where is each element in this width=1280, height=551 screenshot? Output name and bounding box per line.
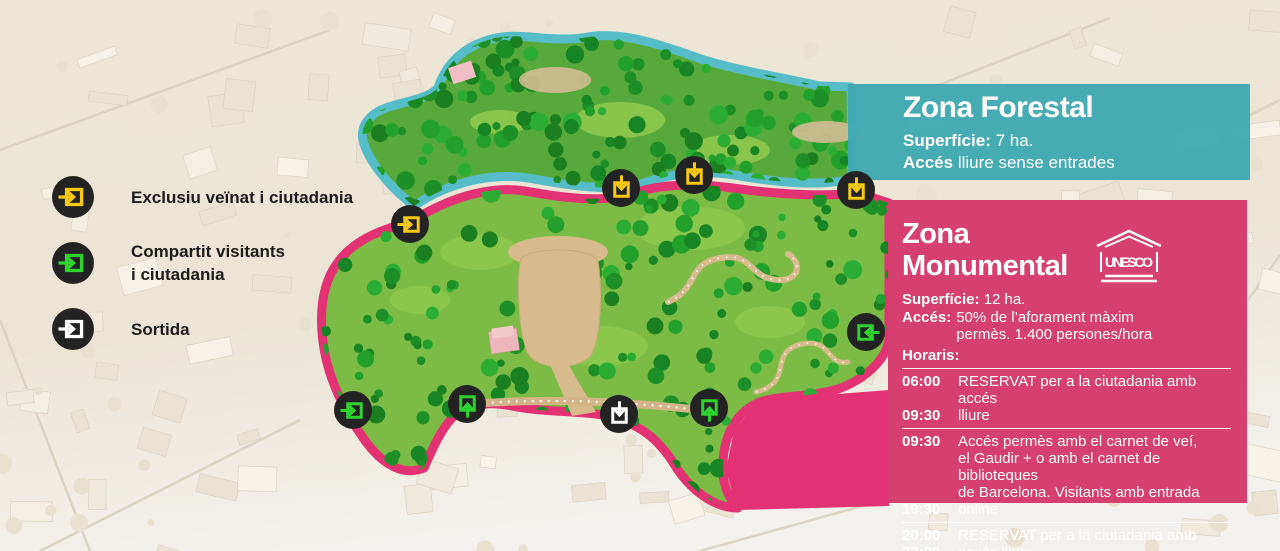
entrance-marker-green-2 [334,391,372,429]
schedule-desc: Accés permès amb el carnet de veí, el Ga… [958,433,1233,518]
forestal-title: Zona Forestal [903,92,1232,124]
entry-arrow-icon [52,176,94,218]
title-line: Zona [902,218,1233,250]
entrance-marker-green-4 [690,389,728,427]
map-legend: Exclusiu veïnat i ciutadania Compartit v… [52,176,353,372]
acces-line: permès. 1.400 persones/hora [956,326,1152,343]
schedule-desc: RESERVAT per a la ciutadania amb accés l… [958,373,1233,424]
entrance-marker-green-3 [448,385,486,423]
gaudi-house-building [488,325,519,354]
title-line: Monumental [902,250,1233,282]
unesco-logo-icon: UNESCO [1093,226,1165,288]
legend-item-compartit: Compartit visitants i ciutadania [52,240,353,286]
unesco-text: UNESCO [1105,254,1153,270]
entrance-marker-yellow-4 [837,171,875,209]
entrance-marker-yellow-2 [602,169,640,207]
zona-forestal-panel: Zona Forestal Superfície: 7 ha. Accés ll… [848,84,1250,180]
schedule-line: RESERVAT per a la ciutadania amb [958,527,1196,544]
schedule-line: lliure [958,407,1233,424]
schedule-line: RESERVAT per a la ciutadania amb accés [958,373,1233,407]
superficie-value: 12 ha. [984,291,1026,308]
schedule-times: 09:30 19:30 [902,433,948,518]
time-start: 20:00 [902,527,948,544]
time-end: 09:30 [902,407,948,424]
exit-arrow-icon [52,308,94,350]
schedule-divider [902,522,1231,523]
acces-label: Accés [903,153,953,172]
legend-item-label: Exclusiu veïnat i ciutadania [131,186,353,209]
schedule-line: Accés permès amb el carnet de veí, [958,433,1233,450]
superficie-value: 7 ha. [996,131,1034,150]
legend-item-exclusiu: Exclusiu veïnat i ciutadania [52,176,353,218]
legend-text: i ciutadania [131,263,285,286]
legend-text: Compartit visitants [131,240,285,263]
forestal-superficie: Superfície: 7 ha. [903,131,1232,151]
entrance-marker-yellow-1 [391,205,429,243]
schedule-row-1: 06:00 09:30 RESERVAT per a la ciutadania… [902,373,1233,424]
time-start: 09:30 [902,433,948,450]
legend-text: Exclusiu veïnat i ciutadania [131,186,353,209]
schedule-line: accés lliure [958,544,1196,551]
schedule-line: el Gaudir + o amb el carnet de biblioteq… [958,450,1233,484]
schedule-times: 20:00 23:00 [902,527,948,551]
schedule-row-2: 09:30 19:30 Accés permès amb el carnet d… [902,433,1233,518]
schedule-divider [902,428,1231,429]
entrance-marker-yellow-3 [675,156,713,194]
schedule-row-3: 20:00 23:00 RESERVAT per a la ciutadania… [902,527,1233,551]
entry-arrow-icon [52,242,94,284]
schedule-desc: RESERVAT per a la ciutadania amb accés l… [958,527,1196,551]
legend-item-sortida: Sortida [52,308,353,350]
forestal-acces: Accés lliure sense entrades [903,153,1232,173]
acces-line: 50% de l’aforament màxim [956,309,1152,326]
acces-value: lliure sense entrades [958,153,1115,172]
horaris-label: Horaris: [902,347,1233,364]
monumental-acces: Accés: 50% de l’aforament màxim permès. … [902,309,1233,343]
monumental-title: Zona Monumental [902,218,1233,282]
entrance-marker-green-1 [847,313,885,351]
legend-item-label: Sortida [131,318,190,341]
acces-text: 50% de l’aforament màxim permès. 1.400 p… [956,309,1152,343]
monumental-superficie: Superfície: 12 ha. [902,291,1233,308]
zona-monumental-panel: Zona Monumental UNESCO Superfície: 12 ha… [888,200,1247,503]
time-end: 19:30 [902,501,948,518]
superficie-label: Superfície: [903,131,991,150]
schedule-times: 06:00 09:30 [902,373,948,424]
legend-text: Sortida [131,318,190,341]
time-end: 23:00 [902,544,948,551]
superficie-label: Superfície: [902,291,980,308]
exit-marker-white-1 [600,395,638,433]
schedule-line: de Barcelona. Visitants amb entrada onli… [958,484,1233,518]
acces-label: Accés: [902,309,951,343]
time-start: 06:00 [902,373,948,390]
park-map-infographic: Exclusiu veïnat i ciutadania Compartit v… [0,0,1280,551]
legend-item-label: Compartit visitants i ciutadania [131,240,285,286]
schedule-divider [902,368,1231,369]
